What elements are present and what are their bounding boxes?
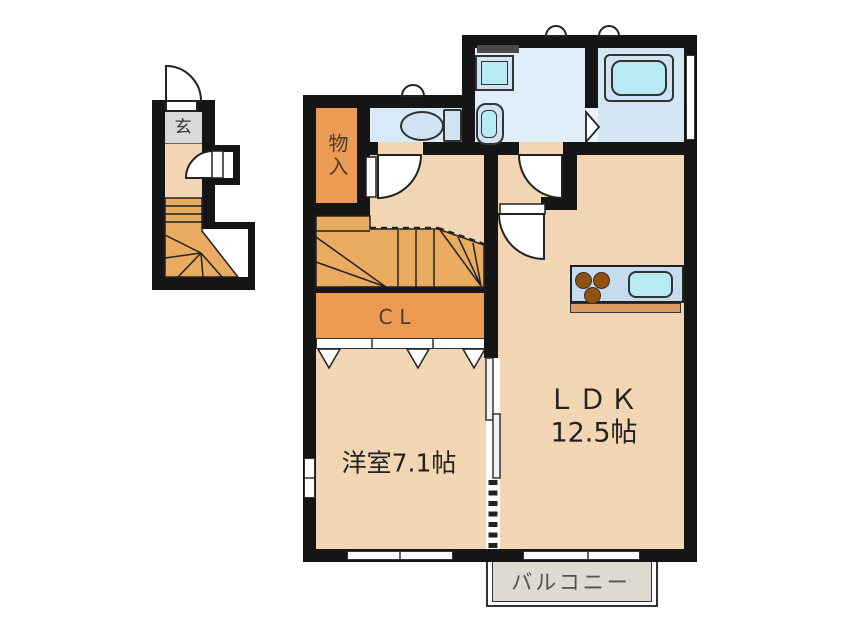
kitchen-sink — [628, 271, 673, 298]
stove-burner — [584, 287, 601, 304]
stove-burner — [593, 272, 610, 289]
toilet-bowl — [400, 111, 444, 141]
vent-window — [546, 26, 566, 36]
washroom-door-swing — [519, 155, 562, 198]
entrance-stairs — [165, 198, 238, 277]
entry-door-swing — [166, 66, 201, 101]
toilet-door-swing — [378, 155, 421, 198]
floor-plan: 玄 物入 CL 洋室7.1帖 ＬＤＫ 12.5帖 バルコニー — [0, 0, 846, 634]
ldk-door-leaf — [500, 204, 545, 214]
bath-folding-door — [586, 112, 599, 142]
toilet-tank — [443, 109, 462, 142]
washer-pan-inner — [481, 61, 508, 85]
closet-doors — [318, 338, 485, 368]
bathtub-inner — [611, 60, 667, 96]
vent-window — [599, 26, 619, 36]
ldk-label-line1: ＬＤＫ — [547, 386, 640, 414]
door-leaf — [212, 151, 223, 178]
balcony-label: バルコニー — [511, 573, 631, 594]
storage-label: 物入 — [327, 133, 347, 179]
sliding-door — [486, 358, 500, 548]
washroom-shelf — [477, 45, 519, 53]
door-swing — [186, 151, 213, 178]
vanity-sink-basin — [481, 110, 497, 138]
entrance-label: 玄 — [175, 120, 192, 137]
ldk-door-swing — [499, 214, 544, 259]
storage-door-leaf — [366, 157, 376, 197]
main-stairs — [316, 216, 484, 287]
kitchen-counter-edge — [570, 303, 681, 313]
western-room-label: 洋室7.1帖 — [342, 451, 457, 476]
vent-window — [402, 85, 424, 96]
ldk-label-line2: 12.5帖 — [550, 420, 637, 447]
closet-label: CL — [378, 307, 417, 327]
